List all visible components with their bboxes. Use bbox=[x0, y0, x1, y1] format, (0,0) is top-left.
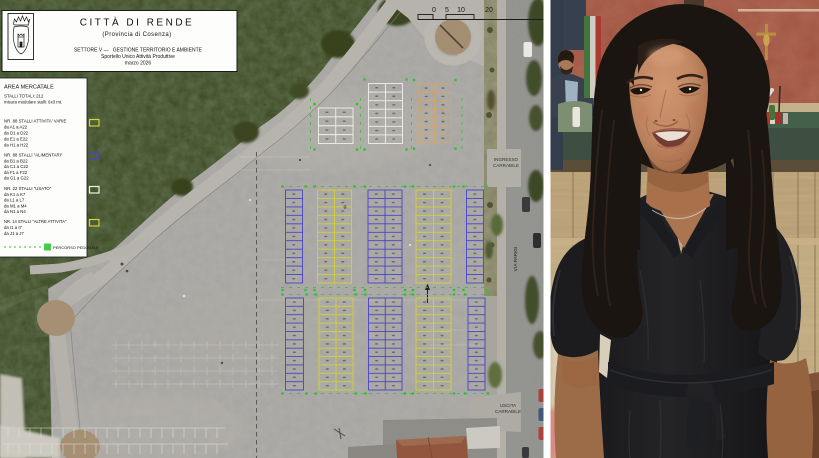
svg-text:INGRESSO: INGRESSO bbox=[494, 157, 519, 162]
svg-text:da J1 a J7: da J1 a J7 bbox=[4, 231, 24, 236]
svg-text:da G1 a G22: da G1 a G22 bbox=[4, 176, 29, 181]
svg-text:CARRABILE: CARRABILE bbox=[495, 409, 521, 414]
svg-text:CARRABILE: CARRABILE bbox=[493, 163, 519, 168]
svg-text:da F1 a F22: da F1 a F22 bbox=[4, 170, 28, 175]
svg-text:20: 20 bbox=[485, 7, 493, 14]
svg-text:da H1 a H22: da H1 a H22 bbox=[4, 143, 29, 148]
svg-text:misura modulare stalli: 6x3 mt: misura modulare stalli: 6x3 mt. bbox=[4, 100, 62, 105]
svg-text:da C1 a C22: da C1 a C22 bbox=[4, 164, 29, 169]
svg-text:5: 5 bbox=[445, 7, 449, 14]
svg-text:NR. 14 STALLI "ALTRE ATTIVITA": NR. 14 STALLI "ALTRE ATTIVITA" bbox=[4, 219, 67, 224]
svg-text:da L1 a L7: da L1 a L7 bbox=[4, 198, 25, 203]
svg-text:(Provincia di Cosenza): (Provincia di Cosenza) bbox=[102, 32, 171, 38]
svg-text:SETTORE V — GESTIONE TERRITO: SETTORE V — GESTIONE TERRITORIO E AMBIEN… bbox=[74, 48, 203, 54]
svg-text:da I1 a I7: da I1 a I7 bbox=[4, 225, 23, 230]
svg-text:da K1 a K7: da K1 a K7 bbox=[4, 192, 26, 197]
svg-text:Sportello Unico Attività Produ: Sportello Unico Attività Produttive bbox=[101, 54, 175, 60]
svg-text:USCITA: USCITA bbox=[500, 403, 517, 408]
svg-text:da D1 a D22: da D1 a D22 bbox=[4, 131, 29, 136]
svg-text:NR. 22 STALLI "USATO": NR. 22 STALLI "USATO" bbox=[4, 186, 52, 191]
svg-text:da A1 a A22: da A1 a A22 bbox=[4, 125, 28, 130]
svg-text:da E1 a E22: da E1 a E22 bbox=[4, 137, 28, 142]
svg-text:NR. 88 STALLI "ALIMENTARI": NR. 88 STALLI "ALIMENTARI" bbox=[4, 153, 63, 158]
svg-text:VIA PARIGI: VIA PARIGI bbox=[513, 247, 519, 272]
svg-text:NR. 88 STALLI ATTIVITA' VARIE: NR. 88 STALLI ATTIVITA' VARIE bbox=[4, 119, 66, 124]
svg-text:da N1 a N4: da N1 a N4 bbox=[4, 209, 26, 214]
svg-text:da M1 a M4: da M1 a M4 bbox=[4, 203, 27, 208]
svg-text:marzo 2026: marzo 2026 bbox=[125, 61, 152, 67]
svg-text:da B1 a B22: da B1 a B22 bbox=[4, 159, 28, 164]
svg-text:10: 10 bbox=[457, 7, 465, 14]
svg-text:AREA MERCATALE: AREA MERCATALE bbox=[4, 85, 54, 91]
svg-text:CITTÀ DI RENDE: CITTÀ DI RENDE bbox=[80, 16, 194, 29]
svg-text:0: 0 bbox=[432, 7, 436, 14]
svg-text:STALLI TOTALI: 212: STALLI TOTALI: 212 bbox=[4, 94, 44, 99]
svg-text:PERCORSO PEDONALE: PERCORSO PEDONALE bbox=[53, 245, 99, 250]
